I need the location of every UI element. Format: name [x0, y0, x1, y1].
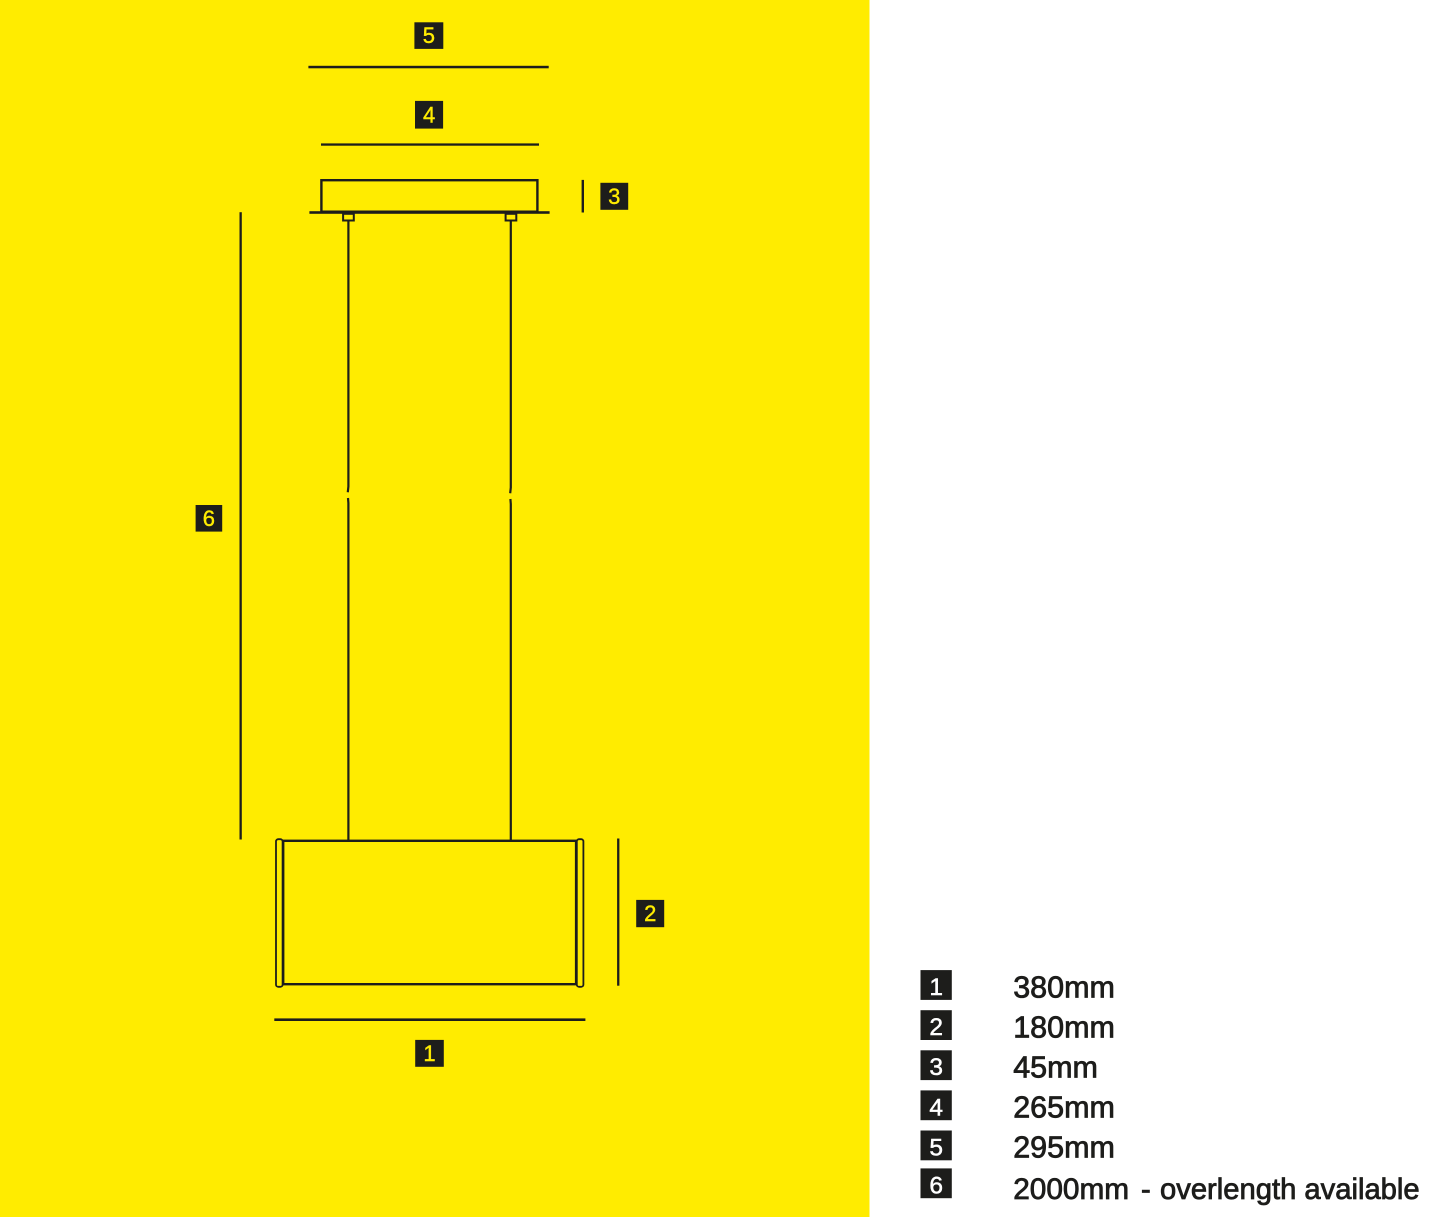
svg-text:6: 6	[203, 506, 215, 531]
svg-text:380mm: 380mm	[1013, 971, 1115, 1005]
svg-text:5: 5	[423, 23, 435, 48]
svg-text:1: 1	[929, 974, 943, 1001]
svg-text:265mm: 265mm	[1013, 1091, 1115, 1125]
svg-text:3: 3	[608, 184, 620, 209]
svg-text:295mm: 295mm	[1013, 1130, 1115, 1164]
svg-text:45mm: 45mm	[1013, 1051, 1098, 1085]
svg-text:6: 6	[929, 1172, 943, 1199]
svg-text:2: 2	[929, 1014, 943, 1041]
svg-text:1: 1	[423, 1041, 435, 1066]
svg-text:2: 2	[644, 901, 656, 926]
svg-text:180mm: 180mm	[1013, 1010, 1115, 1044]
svg-text:5: 5	[929, 1134, 943, 1161]
svg-text:4: 4	[929, 1094, 943, 1121]
svg-text:4: 4	[423, 102, 435, 127]
svg-text:3: 3	[929, 1054, 943, 1081]
svg-text:2000mm: 2000mm	[1013, 1173, 1129, 1206]
svg-text:overlength available: overlength available	[1160, 1174, 1420, 1206]
svg-text:-: -	[1141, 1174, 1151, 1206]
